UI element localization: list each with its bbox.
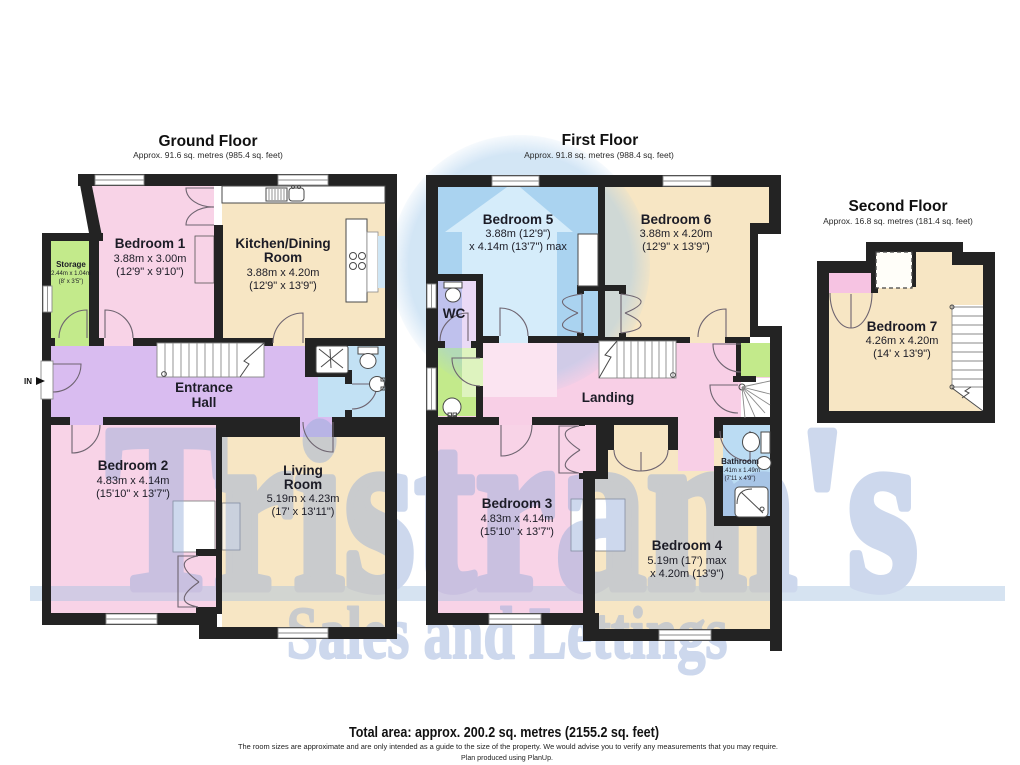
svg-text:(8' x 3'5"): (8' x 3'5")	[59, 279, 84, 285]
svg-text:Plan produced using PlanUp.: Plan produced using PlanUp.	[461, 753, 553, 762]
svg-text:Bedroom 7: Bedroom 7	[867, 319, 938, 334]
svg-text:(12'9" x 13'9"): (12'9" x 13'9")	[249, 280, 317, 292]
svg-text:Approx. 91.6 sq. metres (985.4: Approx. 91.6 sq. metres (985.4 sq. feet)	[133, 150, 283, 160]
svg-text:Bedroom 4: Bedroom 4	[652, 538, 723, 553]
svg-text:Storage: Storage	[56, 260, 86, 269]
svg-text:(14' x 13'9"): (14' x 13'9")	[873, 348, 931, 360]
svg-text:Living: Living	[283, 463, 323, 478]
svg-text:Bedroom 6: Bedroom 6	[641, 212, 712, 227]
svg-text:(15'10" x 13'7"): (15'10" x 13'7")	[96, 488, 170, 500]
svg-text:3.88m x 3.00m: 3.88m x 3.00m	[114, 253, 187, 265]
svg-text:Entrance: Entrance	[175, 380, 233, 395]
svg-text:Landing: Landing	[582, 390, 635, 405]
svg-text:First Floor: First Floor	[562, 132, 639, 149]
svg-text:2.41m x 1.49m: 2.41m x 1.49m	[720, 468, 760, 474]
svg-text:Bedroom 3: Bedroom 3	[482, 496, 553, 511]
svg-text:Room: Room	[284, 477, 322, 492]
svg-text:5.19m x 4.23m: 5.19m x 4.23m	[267, 493, 340, 505]
svg-text:(15'10" x 13'7"): (15'10" x 13'7")	[480, 526, 554, 538]
svg-text:3.88m x 4.20m: 3.88m x 4.20m	[247, 267, 320, 279]
svg-text:Ground Floor: Ground Floor	[158, 133, 257, 150]
svg-text:Bedroom 1: Bedroom 1	[115, 236, 186, 251]
svg-text:(17' x 13'11"): (17' x 13'11")	[272, 506, 335, 518]
svg-text:3.88m x 4.20m: 3.88m x 4.20m	[640, 228, 713, 240]
svg-text:4.83m x 4.14m: 4.83m x 4.14m	[97, 475, 170, 487]
svg-text:3.88m (12'9"): 3.88m (12'9")	[485, 228, 550, 240]
svg-text:Bedroom 5: Bedroom 5	[483, 212, 554, 227]
svg-text:Kitchen/Dining: Kitchen/Dining	[235, 236, 330, 251]
svg-text:(7'11 x 4'9"): (7'11 x 4'9")	[725, 476, 756, 482]
svg-text:5.19m (17') max: 5.19m (17') max	[647, 555, 727, 567]
svg-text:Second Floor: Second Floor	[848, 198, 947, 215]
svg-text:(12'9" x 13'9"): (12'9" x 13'9")	[642, 241, 710, 253]
svg-text:Hall: Hall	[192, 395, 217, 410]
svg-text:2.44m x 1.04m: 2.44m x 1.04m	[51, 271, 91, 277]
svg-text:Approx. 91.8 sq. metres (988.4: Approx. 91.8 sq. metres (988.4 sq. feet)	[524, 150, 674, 160]
svg-text:4.83m x 4.14m: 4.83m x 4.14m	[481, 513, 554, 525]
svg-text:x 4.14m (13'7") max: x 4.14m (13'7") max	[469, 241, 567, 253]
svg-text:Bathroom: Bathroom	[721, 457, 759, 466]
svg-text:x 4.20m (13'9"): x 4.20m (13'9")	[650, 568, 724, 580]
svg-text:Approx. 16.8 sq. metres (181.4: Approx. 16.8 sq. metres (181.4 sq. feet)	[823, 216, 973, 226]
svg-text:Room: Room	[264, 250, 302, 265]
svg-text:4.26m x 4.20m: 4.26m x 4.20m	[866, 335, 939, 347]
svg-text:Total area: approx. 200.2 sq.: Total area: approx. 200.2 sq. metres (21…	[349, 724, 659, 741]
svg-text:WC: WC	[443, 306, 466, 321]
svg-text:The room sizes are approximate: The room sizes are approximate and are o…	[238, 742, 778, 751]
svg-text:(12'9" x 9'10"): (12'9" x 9'10")	[116, 266, 184, 278]
svg-text:IN: IN	[24, 377, 32, 386]
svg-text:Bedroom 2: Bedroom 2	[98, 458, 169, 473]
